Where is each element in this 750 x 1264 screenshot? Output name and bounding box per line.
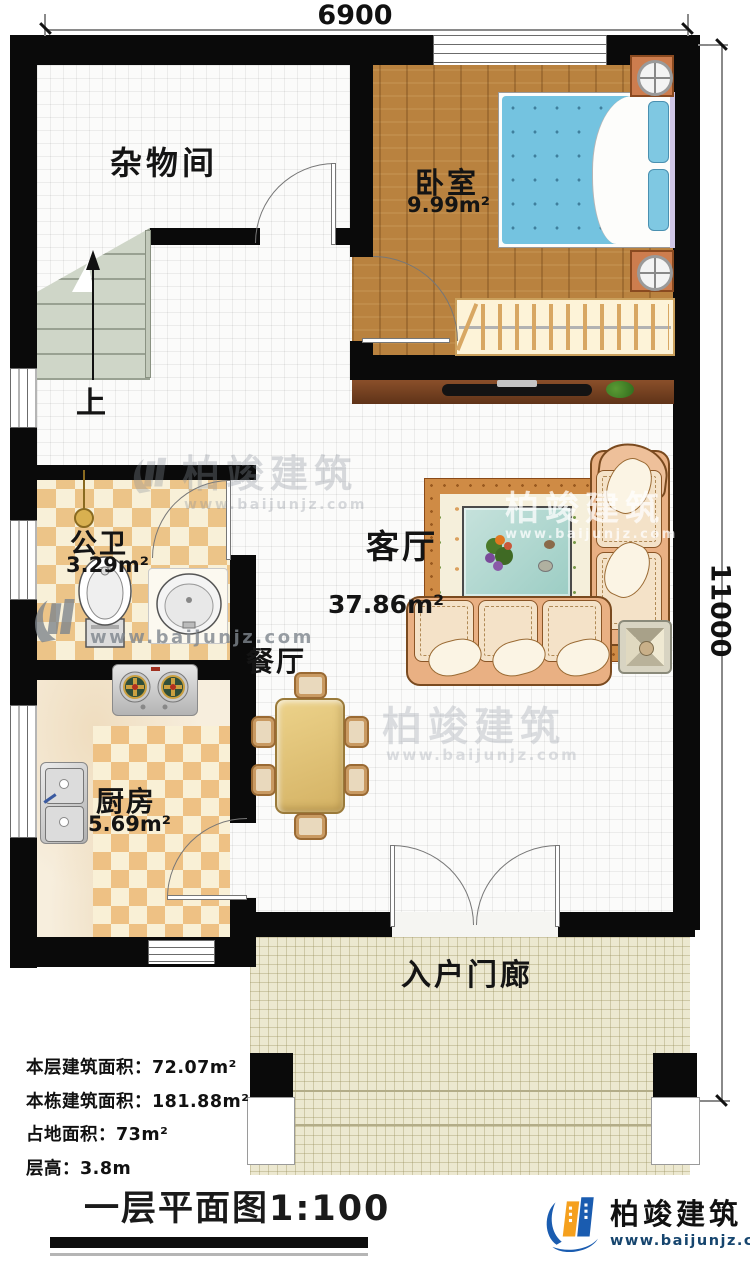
porch-step-line [250,1090,690,1092]
wall-bathroom-top [37,465,256,480]
wardrobe [455,298,675,356]
bed-headboard [670,92,675,248]
side-table-knob [639,641,654,656]
room-label-living: 客厅 [366,520,438,568]
dimension-ext [700,1100,730,1102]
door-leaf [331,163,336,245]
stats-row: 本层建筑面积：72.07m² [26,1054,249,1079]
wall-kitchen-bottom [10,937,256,967]
dining-chair [251,716,276,748]
room-label-dining: 餐厅 [246,640,306,680]
wall [10,65,37,368]
door-leaf [555,845,560,927]
porch-column [250,1053,293,1097]
table-item [538,560,553,572]
room-label-storage: 杂物间 [110,138,218,184]
room-area-bedroom: 9.99m² [407,193,490,217]
bed-pillow [648,101,669,163]
dining-chair [344,716,369,748]
stat-label: 占地面积： [26,1125,116,1145]
window [148,940,215,964]
room-area-living: 37.86m² [328,590,444,619]
wall [673,65,700,930]
bathroom-sink-icon [152,570,226,642]
porch-column [653,1053,697,1097]
stat-value: 3.8m [80,1159,131,1179]
brand-logo-icon [540,1188,602,1252]
dimension-line-top [45,29,688,31]
dining-chair [294,813,327,840]
stat-value: 72.07m² [152,1058,237,1078]
door-leaf [390,845,395,927]
window [10,520,37,600]
dimension-top-label: 6900 [300,0,410,31]
dimension-right-label-box: 11000 [690,545,750,675]
nightstand [630,250,674,292]
window [10,368,37,428]
stat-label: 层高： [26,1159,80,1179]
lamp-icon [637,60,673,96]
kitchen-sink-icon [40,762,88,844]
drain-cord [83,470,85,510]
stat-value: 181.88m² [152,1092,249,1112]
wall [10,35,433,65]
dining-table [275,698,345,814]
title-underline-thin [50,1253,368,1256]
brand-name: 柏竣建筑 [610,1191,750,1233]
side-table [618,620,672,674]
stairs-arrow [92,268,94,380]
brand-url: www.baijunjz.com [610,1233,750,1249]
window [10,705,37,838]
stats-row: 占地面积：73m² [26,1121,249,1146]
wardrobe-hangers [481,304,669,350]
wall-kitchen-right [230,680,256,823]
stat-label: 本栋建筑面积： [26,1092,152,1112]
dining-chair [344,764,369,796]
dimension-ext [687,14,689,36]
stats-block: 本层建筑面积：72.07m² 本栋建筑面积：181.88m² 占地面积：73m²… [26,1054,249,1188]
nightstand [630,55,674,97]
wall-bedroom-left [350,65,373,257]
brand-logo: 柏竣建筑 www.baijunjz.com [540,1188,750,1252]
wall-bedroom-bottom [350,355,690,380]
sink-drain [59,817,69,827]
tv-stand [497,380,537,387]
stairs-rail [145,230,151,378]
stats-row: 本栋建筑面积：181.88m² [26,1088,249,1113]
door-leaf [226,480,231,560]
plant-icon [606,381,634,398]
wall [10,600,37,705]
stairs-arrow-head [86,250,100,270]
lamp-icon [637,255,673,291]
stat-label: 本层建筑面积： [26,1058,152,1078]
porch-column-base [247,1097,295,1165]
stove-icon [112,664,198,716]
title-underline-thick [50,1237,368,1248]
stat-value: 73m² [116,1125,168,1145]
stats-row: 层高：3.8m [26,1155,249,1180]
wall-entry-left [230,912,392,937]
porch-step-line [250,1124,690,1126]
flower-decor-icon [474,528,530,580]
wall [335,228,350,245]
table-item [544,540,555,549]
door-leaf [362,338,450,343]
floor-plan: 上 [0,0,750,1264]
sink-drain [59,779,69,789]
door-leaf [167,895,247,900]
porch-column-base [651,1097,700,1165]
wall [10,428,37,520]
stairs-up-label: 上 [76,378,106,422]
room-label-porch: 入户门廊 [352,950,582,994]
wall-storage [150,228,260,245]
window [433,35,607,65]
room-area-bathroom: 3.29m² [66,553,149,577]
dining-chair [251,764,276,796]
bed-pillow [648,169,669,231]
wall-entry-right [558,912,695,937]
plan-title: 一层平面图1:100 [84,1180,390,1231]
room-area-kitchen: 5.69m² [88,812,171,836]
coffee-table [462,506,572,598]
dimension-right-label: 11000 [705,563,736,657]
